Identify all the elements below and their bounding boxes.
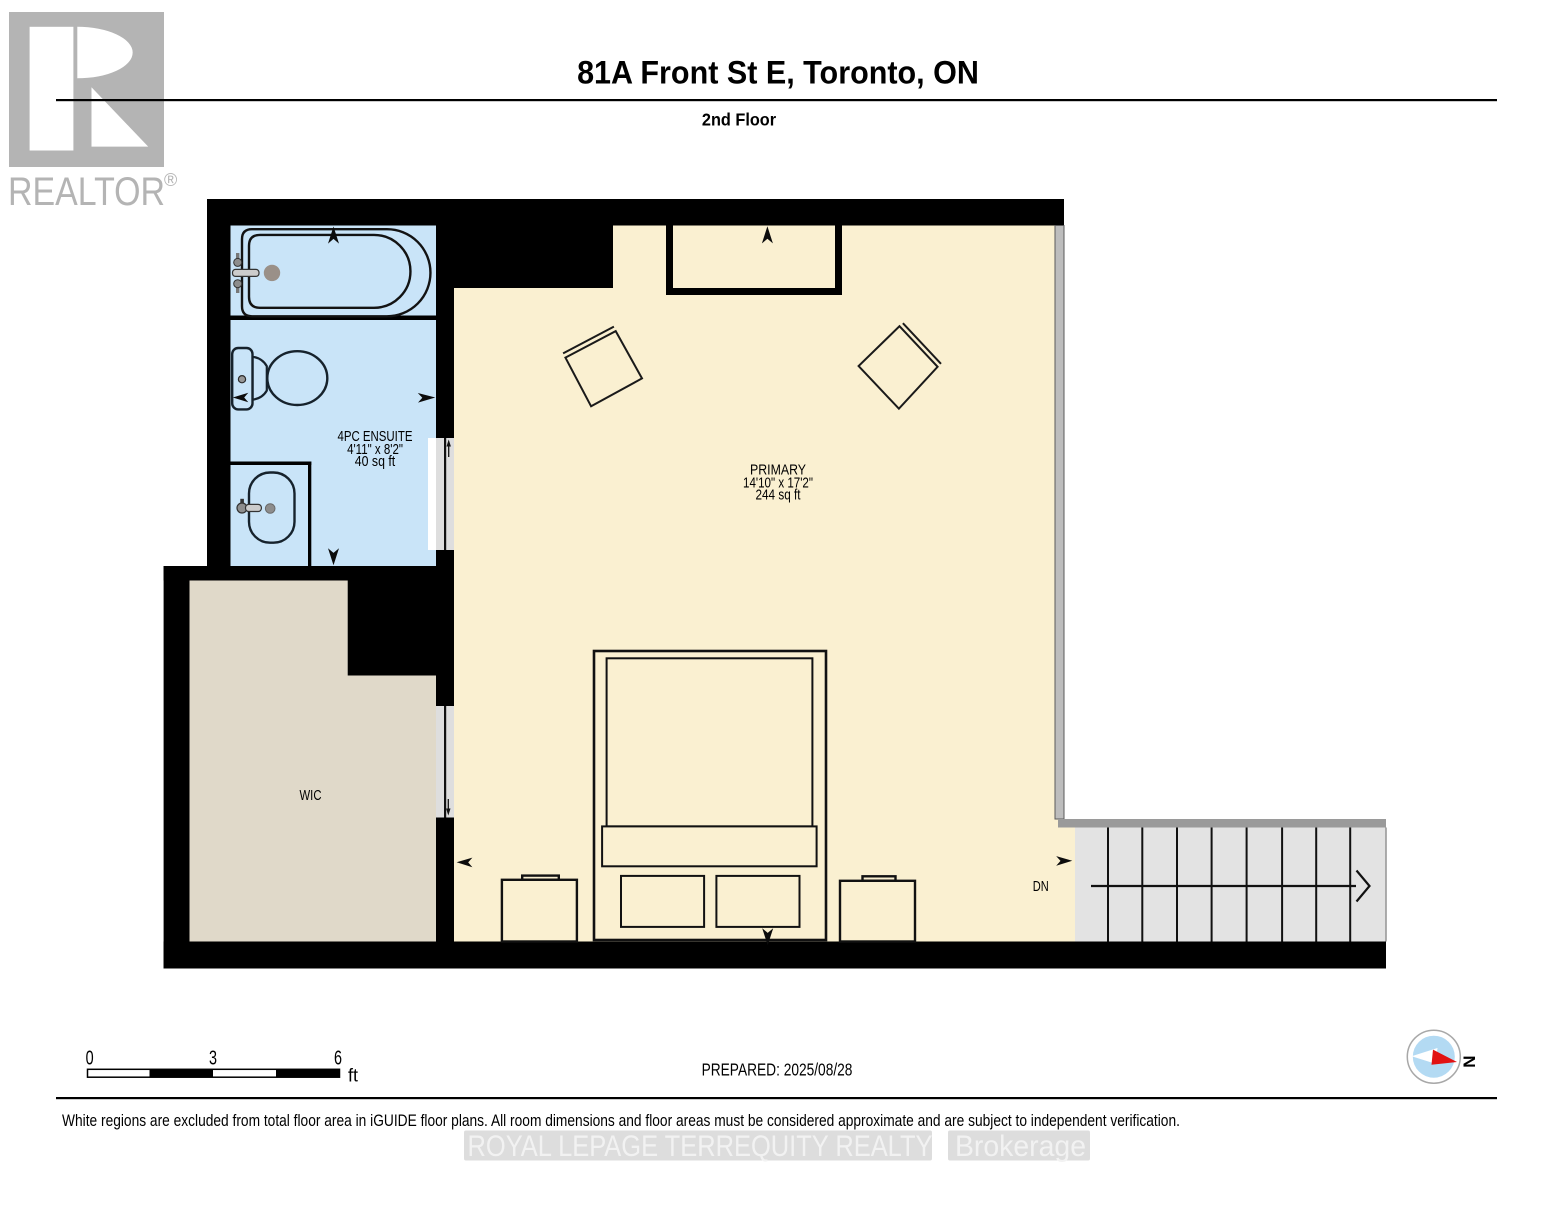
svg-text:White regions are excluded fro: White regions are excluded from total fl…: [62, 1112, 1180, 1130]
svg-text:PREPARED: 2025/08/28: PREPARED: 2025/08/28: [702, 1061, 853, 1080]
svg-text:REALTOR: REALTOR: [8, 168, 165, 213]
svg-text:2nd Floor: 2nd Floor: [702, 109, 777, 130]
svg-text:81A Front St E, Toronto, ON: 81A Front St E, Toronto, ON: [577, 55, 979, 91]
svg-text:WIC: WIC: [300, 787, 322, 804]
svg-text:3: 3: [209, 1046, 217, 1069]
svg-text:40 sq ft: 40 sq ft: [355, 453, 396, 469]
svg-text:244 sq ft: 244 sq ft: [755, 486, 800, 503]
svg-text:N: N: [1460, 1056, 1479, 1068]
svg-text:0: 0: [86, 1046, 94, 1069]
svg-text:ROYAL LEPAGE TERREQUITY REALTY: ROYAL LEPAGE TERREQUITY REALTY: [468, 1129, 933, 1162]
svg-text:ft: ft: [348, 1066, 358, 1086]
svg-text:Brokerage: Brokerage: [955, 1130, 1086, 1163]
svg-text:DN: DN: [1033, 878, 1049, 895]
svg-text:®: ®: [164, 170, 177, 190]
svg-text:6: 6: [334, 1046, 342, 1069]
